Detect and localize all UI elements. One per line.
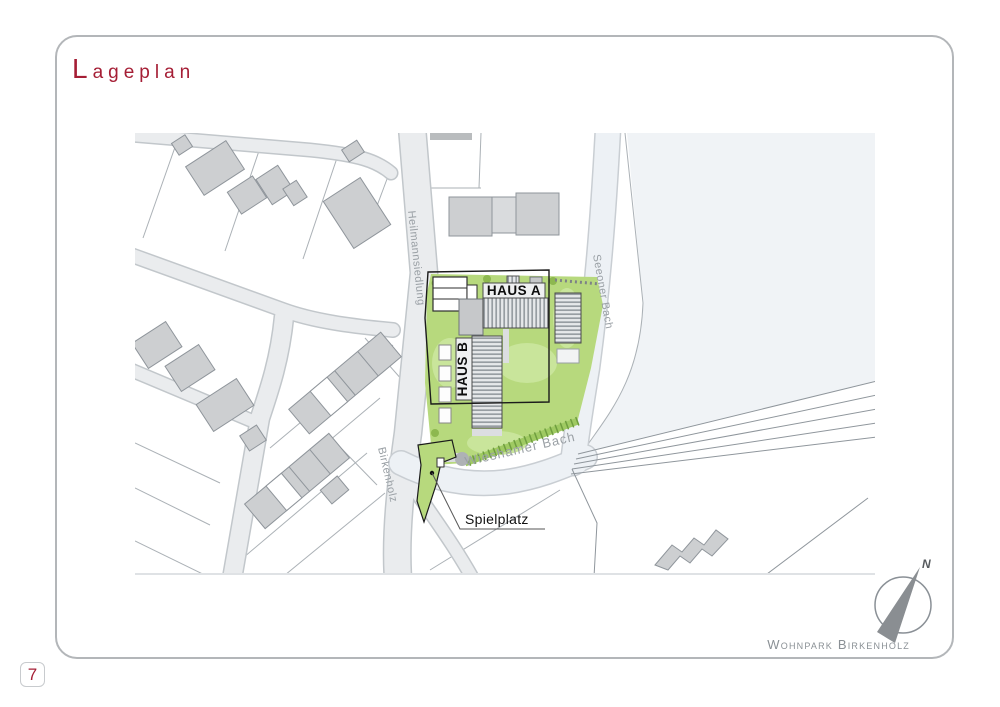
haus-a-label: HAUS A xyxy=(487,283,541,298)
east-carports xyxy=(555,293,581,343)
compass-north-label: N xyxy=(922,557,931,571)
haus-b-label: HAUS B xyxy=(455,342,470,397)
playground-label: Spielplatz xyxy=(465,511,529,527)
site-plan-map: HAUS A HAUS B Spielplatz Heilmannsiedlu xyxy=(135,133,875,575)
compass-icon: N xyxy=(865,555,945,651)
page-title: Lageplan xyxy=(72,53,195,85)
site-plan-svg: HAUS A HAUS B Spielplatz Heilmannsiedlu xyxy=(135,133,875,575)
page-number: 7 xyxy=(20,662,45,687)
